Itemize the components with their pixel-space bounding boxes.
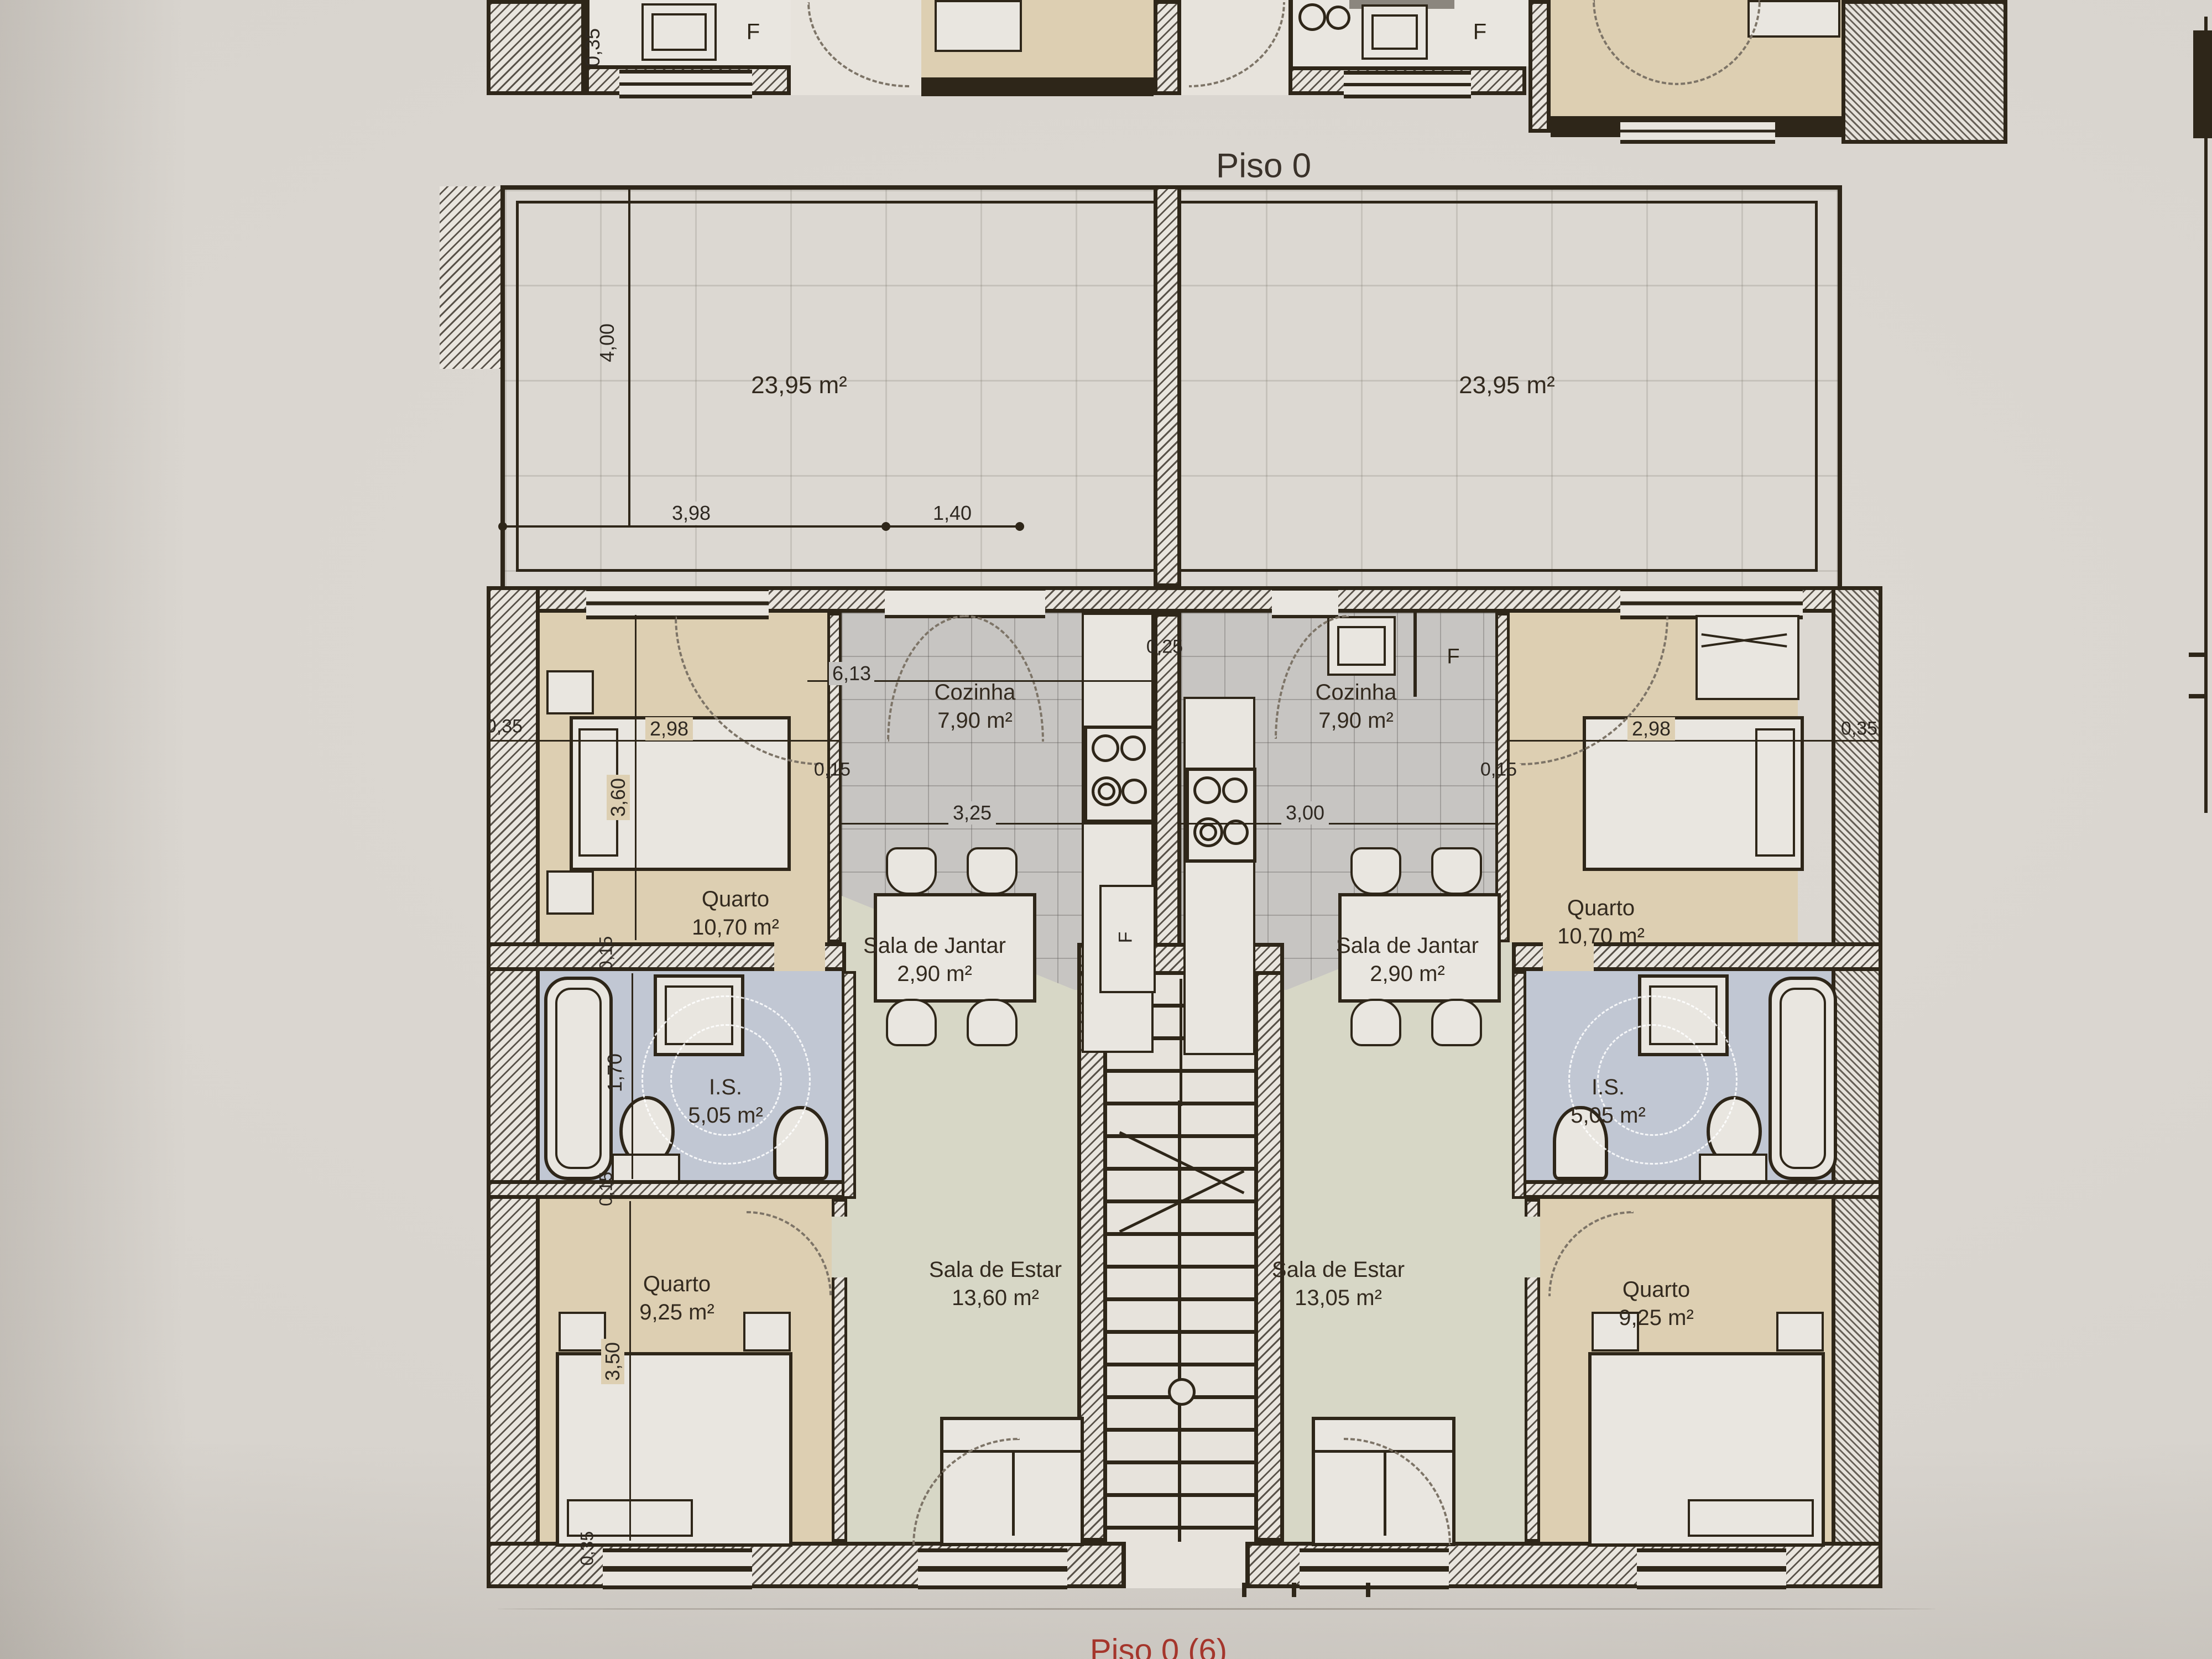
dim-line-kitchen-width-left — [842, 823, 1154, 825]
room-area: 2,90 m² — [863, 960, 1006, 988]
room-area: 7,90 m² — [1316, 707, 1397, 735]
strip-outer-corner-hatch — [1841, 0, 2007, 144]
room-area: 13,60 m² — [929, 1284, 1062, 1312]
fridge-right-label: F — [1447, 645, 1459, 669]
burner — [1120, 735, 1146, 761]
label-kitchen-right: Cozinha7,90 m² — [1316, 679, 1397, 735]
label-living-right: Sala de Estar13,05 m² — [1272, 1256, 1405, 1312]
bathtub-right — [1768, 977, 1837, 1180]
label-bedroom1-left: Quarto10,70 m² — [692, 885, 779, 942]
chair — [1431, 999, 1482, 1046]
strip-sink — [641, 3, 717, 61]
strip-hob-burner-2 — [1326, 6, 1350, 30]
burner — [1092, 734, 1119, 762]
photo-of-floor-plan: F 0,35 F Piso 0 23,95 m² 23,95 m² — [0, 0, 2212, 1659]
room-name: Cozinha — [935, 679, 1016, 707]
dim-bottom-wall: 0,35 — [577, 1531, 598, 1566]
dim-dot-a — [498, 522, 507, 531]
label-dining-left: Sala de Jantar2,90 m² — [863, 932, 1006, 988]
chair — [886, 847, 937, 895]
bed-pillow — [1688, 1499, 1814, 1537]
room-area: 5,05 m² — [1571, 1102, 1646, 1130]
dim-line-bedroom-right — [1510, 740, 1882, 742]
window-living-left-bottom — [918, 1548, 1067, 1589]
dim-terrace-height: 4,00 — [596, 324, 619, 362]
bed-bedroom1-right — [1583, 716, 1804, 871]
room-name: Quarto — [1557, 894, 1645, 922]
toilet-tank-left — [612, 1154, 680, 1182]
dim-bedroom2-height: 3,50 — [601, 1339, 624, 1384]
door-gap-bedroom2-right — [1525, 1217, 1540, 1277]
dim-outer-wall-left: 0,35 — [486, 716, 523, 738]
upper-floor-strip: F 0,35 F — [0, 0, 2212, 171]
strip-sink-right-basin — [1371, 14, 1418, 50]
strip-fridge-label-left: F — [747, 20, 760, 45]
dim-line-bedroom2-height — [629, 1201, 631, 1541]
strip-fridge-label-right: F — [1473, 20, 1486, 45]
toilet-tank-right — [1699, 1154, 1767, 1182]
chair — [967, 847, 1018, 895]
strip-sink-basin — [651, 13, 707, 51]
strip-window-c — [1620, 118, 1775, 144]
chair — [967, 999, 1018, 1046]
label-bedroom2-left: Quarto9,25 m² — [639, 1270, 714, 1327]
footer-title: Piso 0 (6) — [1090, 1632, 1227, 1659]
terrace-center-wall — [1154, 185, 1181, 587]
nightstand — [546, 870, 594, 915]
burner — [1092, 776, 1121, 806]
stove-right — [1186, 768, 1256, 863]
room-name: Quarto — [639, 1270, 714, 1298]
dim-partition-left: 0,15 — [814, 759, 851, 781]
room-name: Sala de Estar — [929, 1256, 1062, 1284]
bed-bedroom2-left — [556, 1352, 792, 1547]
bathtub-inner — [1780, 988, 1826, 1169]
wall-bath-right-bottom — [1512, 1180, 1882, 1199]
door-gap-bedroom2-left — [832, 1217, 847, 1277]
burner — [1193, 776, 1221, 804]
wall-bath-left-right — [842, 971, 856, 1199]
chair — [1350, 847, 1401, 895]
stair-newel-circle — [1168, 1378, 1196, 1406]
dim-terrace-width-b: 1,40 — [928, 502, 976, 525]
strip-wardrobe-right — [1747, 0, 1840, 38]
dim-terrace-width-a: 3,98 — [667, 502, 715, 525]
kitchen-right-cabinet-divider — [1413, 613, 1417, 697]
room-name: I.S. — [1571, 1073, 1646, 1102]
bed-bedroom2-right — [1588, 1352, 1825, 1547]
label-bath-left: I.S.5,05 m² — [688, 1073, 763, 1130]
kitchen-counter-right — [1183, 697, 1255, 1055]
nightstand — [546, 670, 594, 714]
wall-bath-left-bottom — [487, 1180, 846, 1199]
label-bedroom1-right: Quarto10,70 m² — [1557, 894, 1645, 951]
stove-left — [1084, 726, 1155, 823]
dim-bedroom-width-left: 2,98 — [645, 717, 693, 740]
nightstand — [743, 1312, 791, 1352]
strip-wardrobe-left — [935, 0, 1022, 52]
room-area: 9,25 m² — [1619, 1304, 1694, 1332]
dim-line-terrace-horizontal — [502, 525, 1020, 528]
label-kitchen-left: Cozinha7,90 m² — [935, 679, 1016, 735]
chair — [1350, 999, 1401, 1046]
strip-center-wall — [1154, 0, 1181, 95]
footer-plan-tick — [1242, 1583, 1246, 1597]
room-name: Sala de Jantar — [863, 932, 1006, 960]
terrace-right-area-label: 23,95 m² — [1459, 372, 1555, 399]
dim-line-bedroom-height-left — [635, 615, 637, 940]
dim-line-kitchen-width-right — [1181, 823, 1495, 825]
adjacent-sheet-tick — [2189, 653, 2205, 657]
stair-arrow-line — [1180, 979, 1182, 1106]
label-bedroom2-right: Quarto9,25 m² — [1619, 1276, 1694, 1332]
nightstand — [559, 1312, 606, 1352]
bathtub-left — [544, 977, 613, 1180]
terrace-left-area-label: 23,95 m² — [751, 372, 847, 399]
label-living-left: Sala de Estar13,60 m² — [929, 1256, 1062, 1312]
plan-title: Piso 0 — [1216, 147, 1311, 186]
room-area: 10,70 m² — [1557, 922, 1645, 951]
strip-wall-beige-left — [921, 77, 1154, 96]
dim-dot-c — [1015, 522, 1024, 531]
room-area: 10,70 m² — [692, 914, 779, 942]
footer-plan-tick — [1292, 1583, 1296, 1597]
door-gap-bedroom1-left — [774, 942, 825, 971]
strip-window-b — [1344, 71, 1471, 98]
bed-pillow — [1755, 728, 1795, 857]
fridge-left-label: F — [1115, 932, 1137, 943]
chair — [886, 999, 937, 1046]
window-bedroom1-left — [586, 587, 769, 619]
room-name: Sala de Estar — [1272, 1256, 1405, 1284]
room-area: 9,25 m² — [639, 1298, 714, 1327]
adjacent-sheet-block — [2193, 30, 2212, 138]
terrace-left-exterior-wall-stub — [440, 186, 502, 369]
dim-bedroom-height-left: 3,60 — [607, 775, 630, 820]
room-area: 13,05 m² — [1272, 1284, 1405, 1312]
burner — [1222, 778, 1248, 803]
dim-bedroom-width-right: 2,98 — [1627, 717, 1675, 740]
chair — [1431, 847, 1482, 895]
dim-bath-wall-bottom: 0,15 — [596, 1172, 617, 1206]
strip-sink-right — [1361, 4, 1428, 60]
wall-center-kitchens — [1154, 613, 1181, 974]
strip-wall-left-block — [487, 0, 585, 95]
label-bath-right: I.S.5,05 m² — [1571, 1073, 1646, 1130]
room-name: I.S. — [688, 1073, 763, 1102]
dim-line-bath-height — [632, 973, 633, 1179]
strip-hob-burner-1 — [1298, 3, 1326, 31]
dim-line-terrace-vertical — [628, 188, 630, 528]
nightstand — [1776, 1312, 1824, 1352]
bathtub-inner — [555, 988, 602, 1169]
dim-bath-height: 1,70 — [603, 1053, 627, 1092]
burner — [1193, 817, 1223, 847]
strip-wall-beige-right-left-jamb — [1528, 0, 1551, 133]
room-name: Quarto — [692, 885, 779, 914]
room-name: Quarto — [1619, 1276, 1694, 1304]
footer-shadow-line — [498, 1608, 1936, 1610]
burner — [1121, 779, 1147, 804]
adjacent-sheet-tick — [2189, 694, 2205, 698]
strip-window-a — [619, 70, 752, 98]
window-bedroom2-left-bottom — [603, 1548, 752, 1589]
label-dining-right: Sala de Jantar2,90 m² — [1336, 932, 1479, 988]
room-area: 5,05 m² — [688, 1102, 763, 1130]
room-name: Sala de Jantar — [1336, 932, 1479, 960]
stair-center-rail — [1178, 1100, 1181, 1542]
window-living-right-bottom — [1300, 1548, 1449, 1589]
dim-kitchen-top: 6,13 — [829, 662, 874, 685]
dim-outer-wall-right: 0,35 — [1841, 718, 1877, 740]
dim-kitchen-width-right: 3,00 — [1281, 801, 1329, 825]
paper-shadow-left — [0, 0, 188, 1659]
room-area: 7,90 m² — [935, 707, 1016, 735]
dim-dot-b — [881, 522, 890, 531]
dim-partition-right: 0,15 — [1480, 759, 1517, 781]
dim-bath-wall-top: 0,15 — [596, 936, 617, 971]
wardrobe-right-bedroom — [1695, 615, 1799, 700]
room-area: 2,90 m² — [1336, 960, 1479, 988]
wall-bath-right-left — [1512, 971, 1526, 1199]
window-bedroom2-right-bottom — [1637, 1548, 1786, 1589]
dim-center-half-wall: 0,25 — [1146, 637, 1183, 658]
strip-dim-wall: 0,35 — [581, 28, 604, 67]
room-name: Cozinha — [1316, 679, 1397, 707]
footer-plan-tick — [1366, 1583, 1370, 1597]
dim-kitchen-width-left: 3,25 — [948, 801, 996, 825]
opening-kitchen-right — [1272, 587, 1338, 618]
wall-stair-right — [1254, 943, 1284, 1542]
opening-kitchen-left — [885, 587, 1045, 618]
